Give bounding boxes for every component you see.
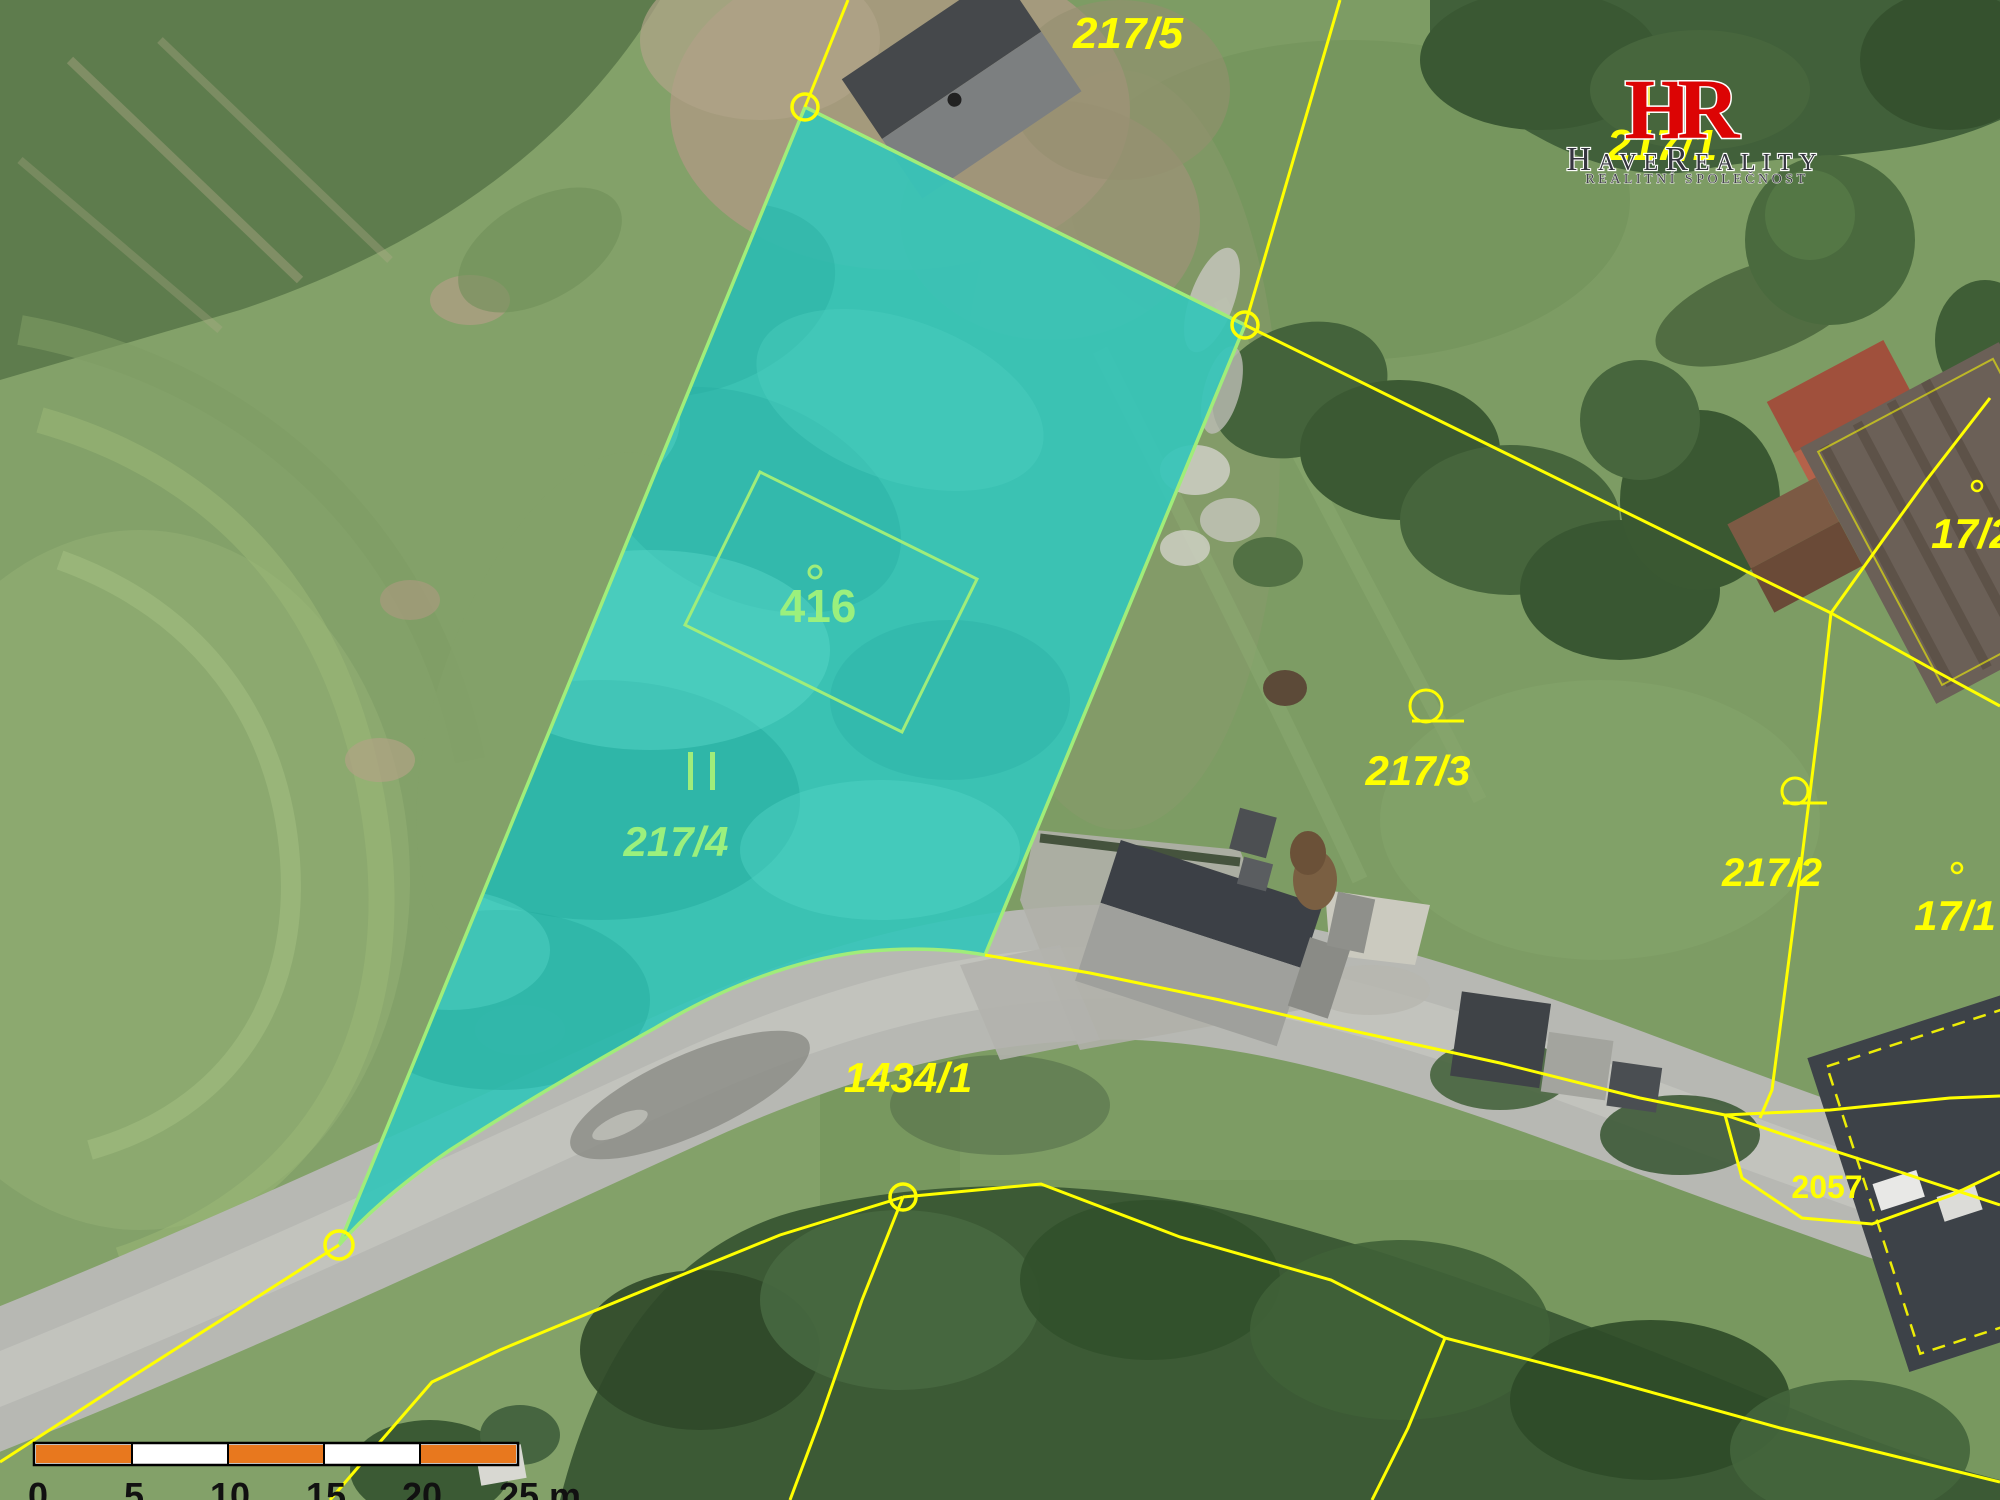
map-canvas: 217/5 217/1 17/2 217/3 217/2 17/1 2057 1… — [0, 0, 2000, 1500]
parcel-label-217-4: 217/4 — [622, 818, 728, 865]
scale-tick-5: 5 — [124, 1475, 144, 1500]
double-tick — [710, 752, 715, 790]
scale-tick-0: 0 — [28, 1475, 48, 1500]
scale-tick-20: 20 — [402, 1475, 442, 1500]
parcel-label-1434-1: 1434/1 — [844, 1054, 972, 1101]
scale-segment — [36, 1445, 132, 1463]
parcel-label-217-3: 217/3 — [1364, 747, 1470, 794]
logo-tagline: REALITNÍ SPOLEČNOST — [1585, 170, 1808, 187]
scale-segment — [228, 1445, 324, 1463]
cadastral-map-screenshot: 217/5 217/1 17/2 217/3 217/2 17/1 2057 1… — [0, 0, 2000, 1500]
parcel-label-217-2: 217/2 — [1721, 851, 1822, 895]
parcel-label-17-1: 17/1 — [1914, 892, 1996, 939]
parcel-label-217-5: 217/5 — [1072, 9, 1184, 58]
scale-segment — [420, 1445, 516, 1463]
scale-tick-25m: 25 m — [499, 1475, 581, 1500]
double-tick — [688, 752, 693, 790]
parcel-label-416: 416 — [780, 580, 857, 632]
parcel-label-17-2: 17/2 — [1931, 510, 2000, 557]
scale-tick-10: 10 — [210, 1475, 250, 1500]
parcel-label-2057: 2057 — [1791, 1169, 1862, 1205]
scale-tick-15: 15 — [306, 1475, 346, 1500]
